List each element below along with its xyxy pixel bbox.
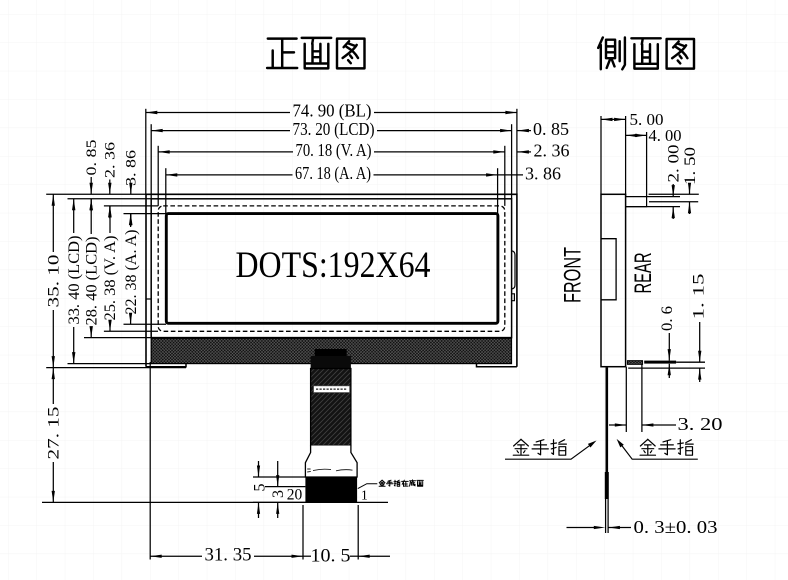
svg-text:0. 3±0. 03: 0. 3±0. 03	[634, 517, 718, 537]
svg-text:20: 20	[287, 486, 303, 503]
svg-text:33. 40 (LCD): 33. 40 (LCD)	[66, 236, 83, 325]
svg-text:3. 86: 3. 86	[124, 150, 140, 186]
svg-text:4. 00: 4. 00	[649, 126, 682, 145]
svg-text:0. 85: 0. 85	[84, 140, 100, 176]
svg-text:35. 10: 35. 10	[46, 255, 63, 308]
svg-text:3: 3	[270, 490, 287, 498]
svg-text:3. 20: 3. 20	[678, 414, 723, 434]
svg-text:1: 1	[361, 488, 368, 503]
svg-text:27. 15: 27. 15	[46, 407, 63, 460]
svg-text:FRONT: FRONT	[560, 247, 587, 303]
svg-text:1. 15: 1. 15	[691, 274, 708, 320]
svg-text:5: 5	[252, 484, 269, 492]
svg-text:1. 50: 1. 50	[682, 147, 699, 185]
svg-text:28. 40 (LCD): 28. 40 (LCD)	[83, 237, 100, 326]
svg-text:DOTS:192X64: DOTS:192X64	[236, 244, 431, 285]
svg-text:22. 38 (A. A): 22. 38 (A. A)	[123, 230, 140, 315]
svg-text:67. 18 (A. A): 67. 18 (A. A)	[295, 163, 371, 184]
svg-text:0. 85: 0. 85	[533, 119, 569, 139]
svg-text:70. 18 (V. A): 70. 18 (V. A)	[296, 140, 372, 161]
svg-text:REAR: REAR	[630, 253, 657, 294]
svg-text:0. 6: 0. 6	[659, 306, 676, 331]
svg-text:2. 00: 2. 00	[666, 145, 683, 183]
svg-text:25. 38 (V. A): 25. 38 (V. A)	[102, 236, 119, 321]
svg-text:10. 5: 10. 5	[311, 547, 351, 567]
svg-text:3. 86: 3. 86	[525, 163, 561, 183]
svg-text:2. 36: 2. 36	[103, 142, 119, 178]
svg-text:31. 35: 31. 35	[205, 545, 252, 565]
svg-text:73. 20 (LCD): 73. 20 (LCD)	[293, 119, 375, 140]
svg-text:2. 36: 2. 36	[534, 140, 570, 160]
